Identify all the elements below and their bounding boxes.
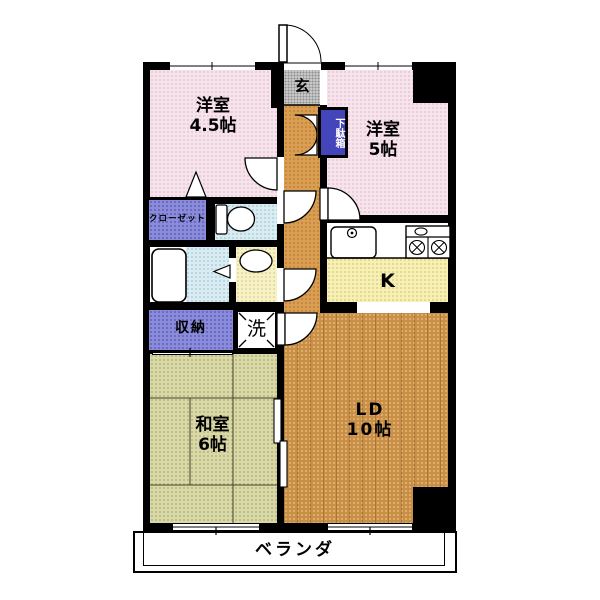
shoe-cabinet-label: 下駄箱 — [324, 112, 343, 154]
veranda-label: ベランダ — [133, 540, 457, 560]
bathroom-floor — [186, 247, 229, 302]
toilet-room — [215, 204, 277, 240]
window-western5-gap — [345, 62, 412, 70]
entry-door-gap — [284, 62, 321, 70]
living-dining-label: LD 10帖 — [310, 400, 430, 440]
japanese-room-label: 和室 6帖 — [155, 415, 270, 455]
wall-under-western5 — [320, 215, 456, 223]
wall-genkan-left — [271, 62, 284, 108]
western5-door-gap — [320, 188, 327, 220]
floor-plan: ベランダ — [0, 0, 600, 600]
wall-right — [448, 62, 456, 531]
storage-label: 収納 — [146, 320, 236, 337]
wall-left — [143, 62, 150, 531]
hallway — [284, 105, 320, 313]
washroom-door-gap — [277, 268, 284, 302]
kitchen-label: K — [327, 270, 448, 292]
closet-label: クローゼット — [148, 214, 207, 224]
entry-door-leaf — [279, 25, 287, 62]
pillar-bottom-right — [413, 487, 456, 531]
bathroom-door-gap — [229, 258, 236, 282]
toilet-door-gap — [277, 191, 284, 224]
pillar-top-right — [413, 62, 456, 103]
kitchen-ld-opening — [357, 302, 430, 313]
balcony-door-east-gap — [327, 523, 413, 531]
western-room-4-5-label: 洋室 4.5帖 — [158, 96, 268, 136]
window-western45-gap — [170, 62, 255, 70]
balcony-door-west-gap — [172, 523, 260, 531]
laundry-label: 洗 — [236, 318, 277, 340]
washroom — [236, 247, 277, 302]
entrance-label: 玄 — [284, 78, 320, 96]
entry-door-arc — [284, 25, 321, 62]
kitchen-counter-area — [327, 223, 448, 258]
western-room-5-label: 洋室 5帖 — [328, 120, 438, 160]
